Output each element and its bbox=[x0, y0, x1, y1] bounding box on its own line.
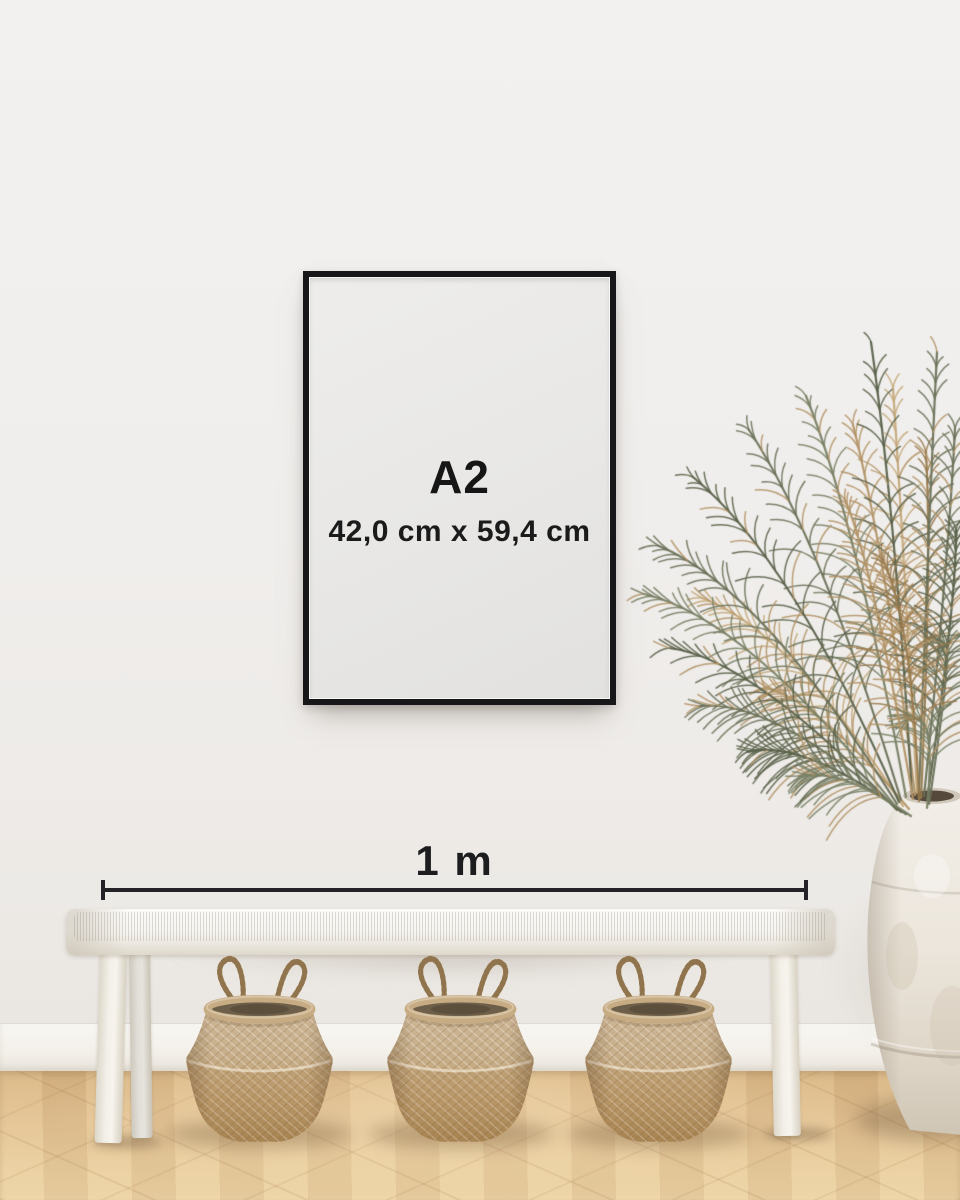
measurement-label: 1 m bbox=[101, 840, 808, 882]
bench-leg-left-back bbox=[129, 950, 153, 1138]
poster-size-label: A2 bbox=[429, 454, 490, 500]
bench-leg-left-front bbox=[95, 950, 127, 1144]
seagrass-basket-2 bbox=[368, 944, 553, 1149]
measurement-annotation: 1 m bbox=[101, 840, 808, 900]
measurement-line bbox=[101, 888, 808, 892]
seagrass-basket-3 bbox=[566, 944, 751, 1149]
poster-text-block: A2 42,0 cm x 59,4 cm bbox=[328, 454, 590, 547]
bench-leg-right-front bbox=[770, 950, 801, 1137]
room-scene: A2 42,0 cm x 59,4 cm 1 m bbox=[0, 0, 960, 1200]
picture-frame: A2 42,0 cm x 59,4 cm bbox=[303, 271, 616, 705]
poster-dimensions-label: 42,0 cm x 59,4 cm bbox=[328, 517, 590, 547]
white-urn-vase bbox=[862, 786, 960, 1142]
poster: A2 42,0 cm x 59,4 cm bbox=[309, 277, 610, 699]
seagrass-basket-1 bbox=[167, 944, 352, 1149]
